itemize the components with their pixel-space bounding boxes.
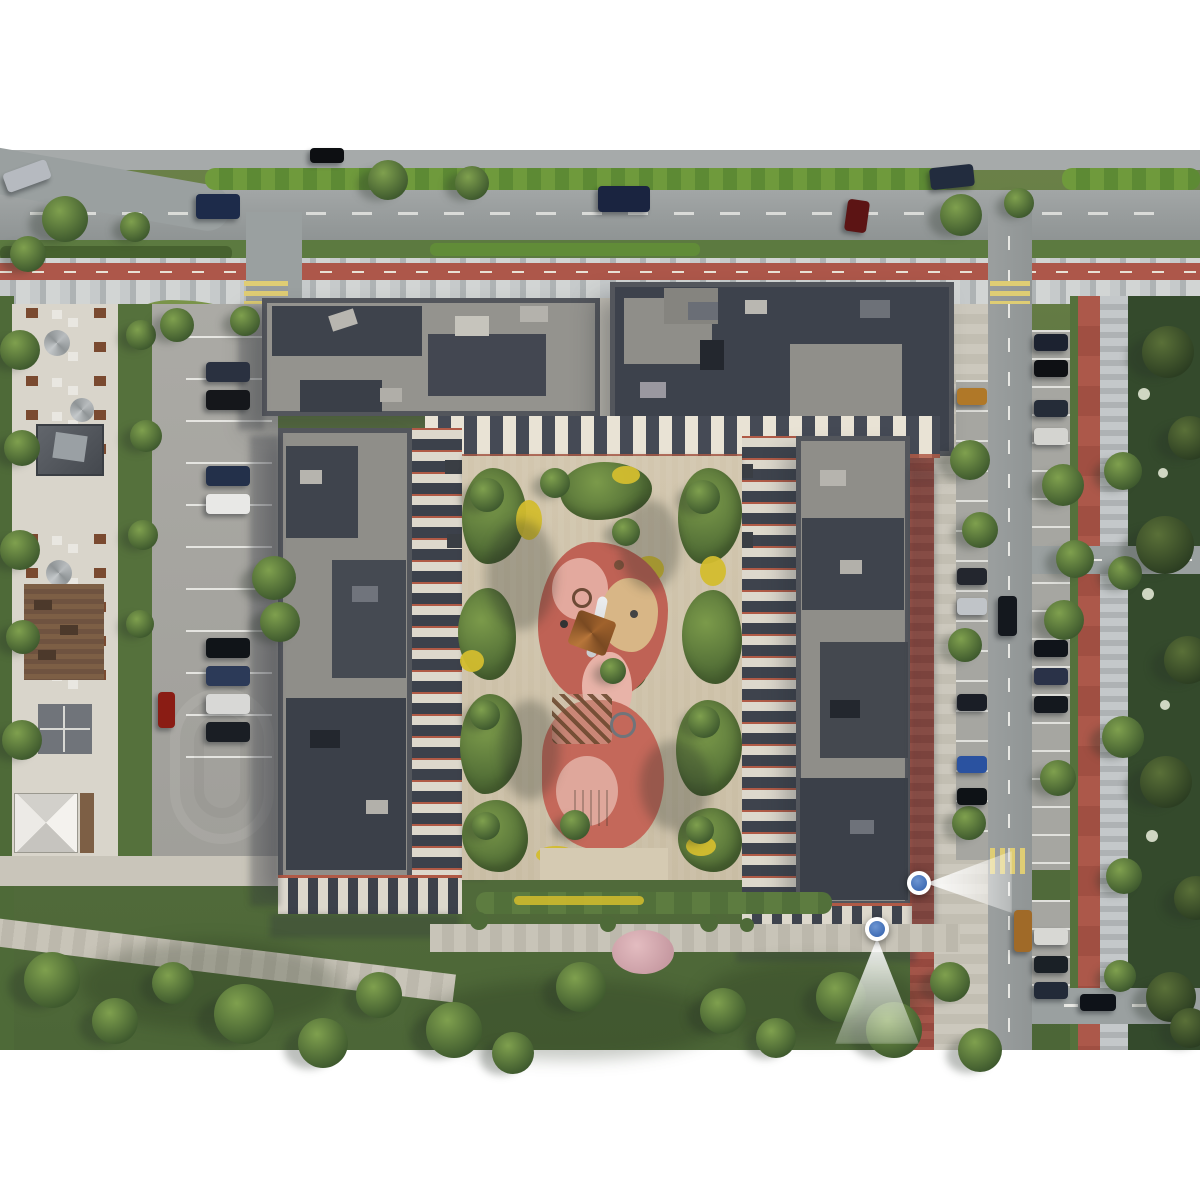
camera-viewpoint-2[interactable] [865,917,889,941]
view-cone-south [835,938,919,1044]
camera-viewpoint-1[interactable] [907,871,931,895]
aerial-site-plan [0,0,1200,1200]
viewpoint-markers-layer [0,0,1200,1200]
view-cone-east [926,851,1012,913]
